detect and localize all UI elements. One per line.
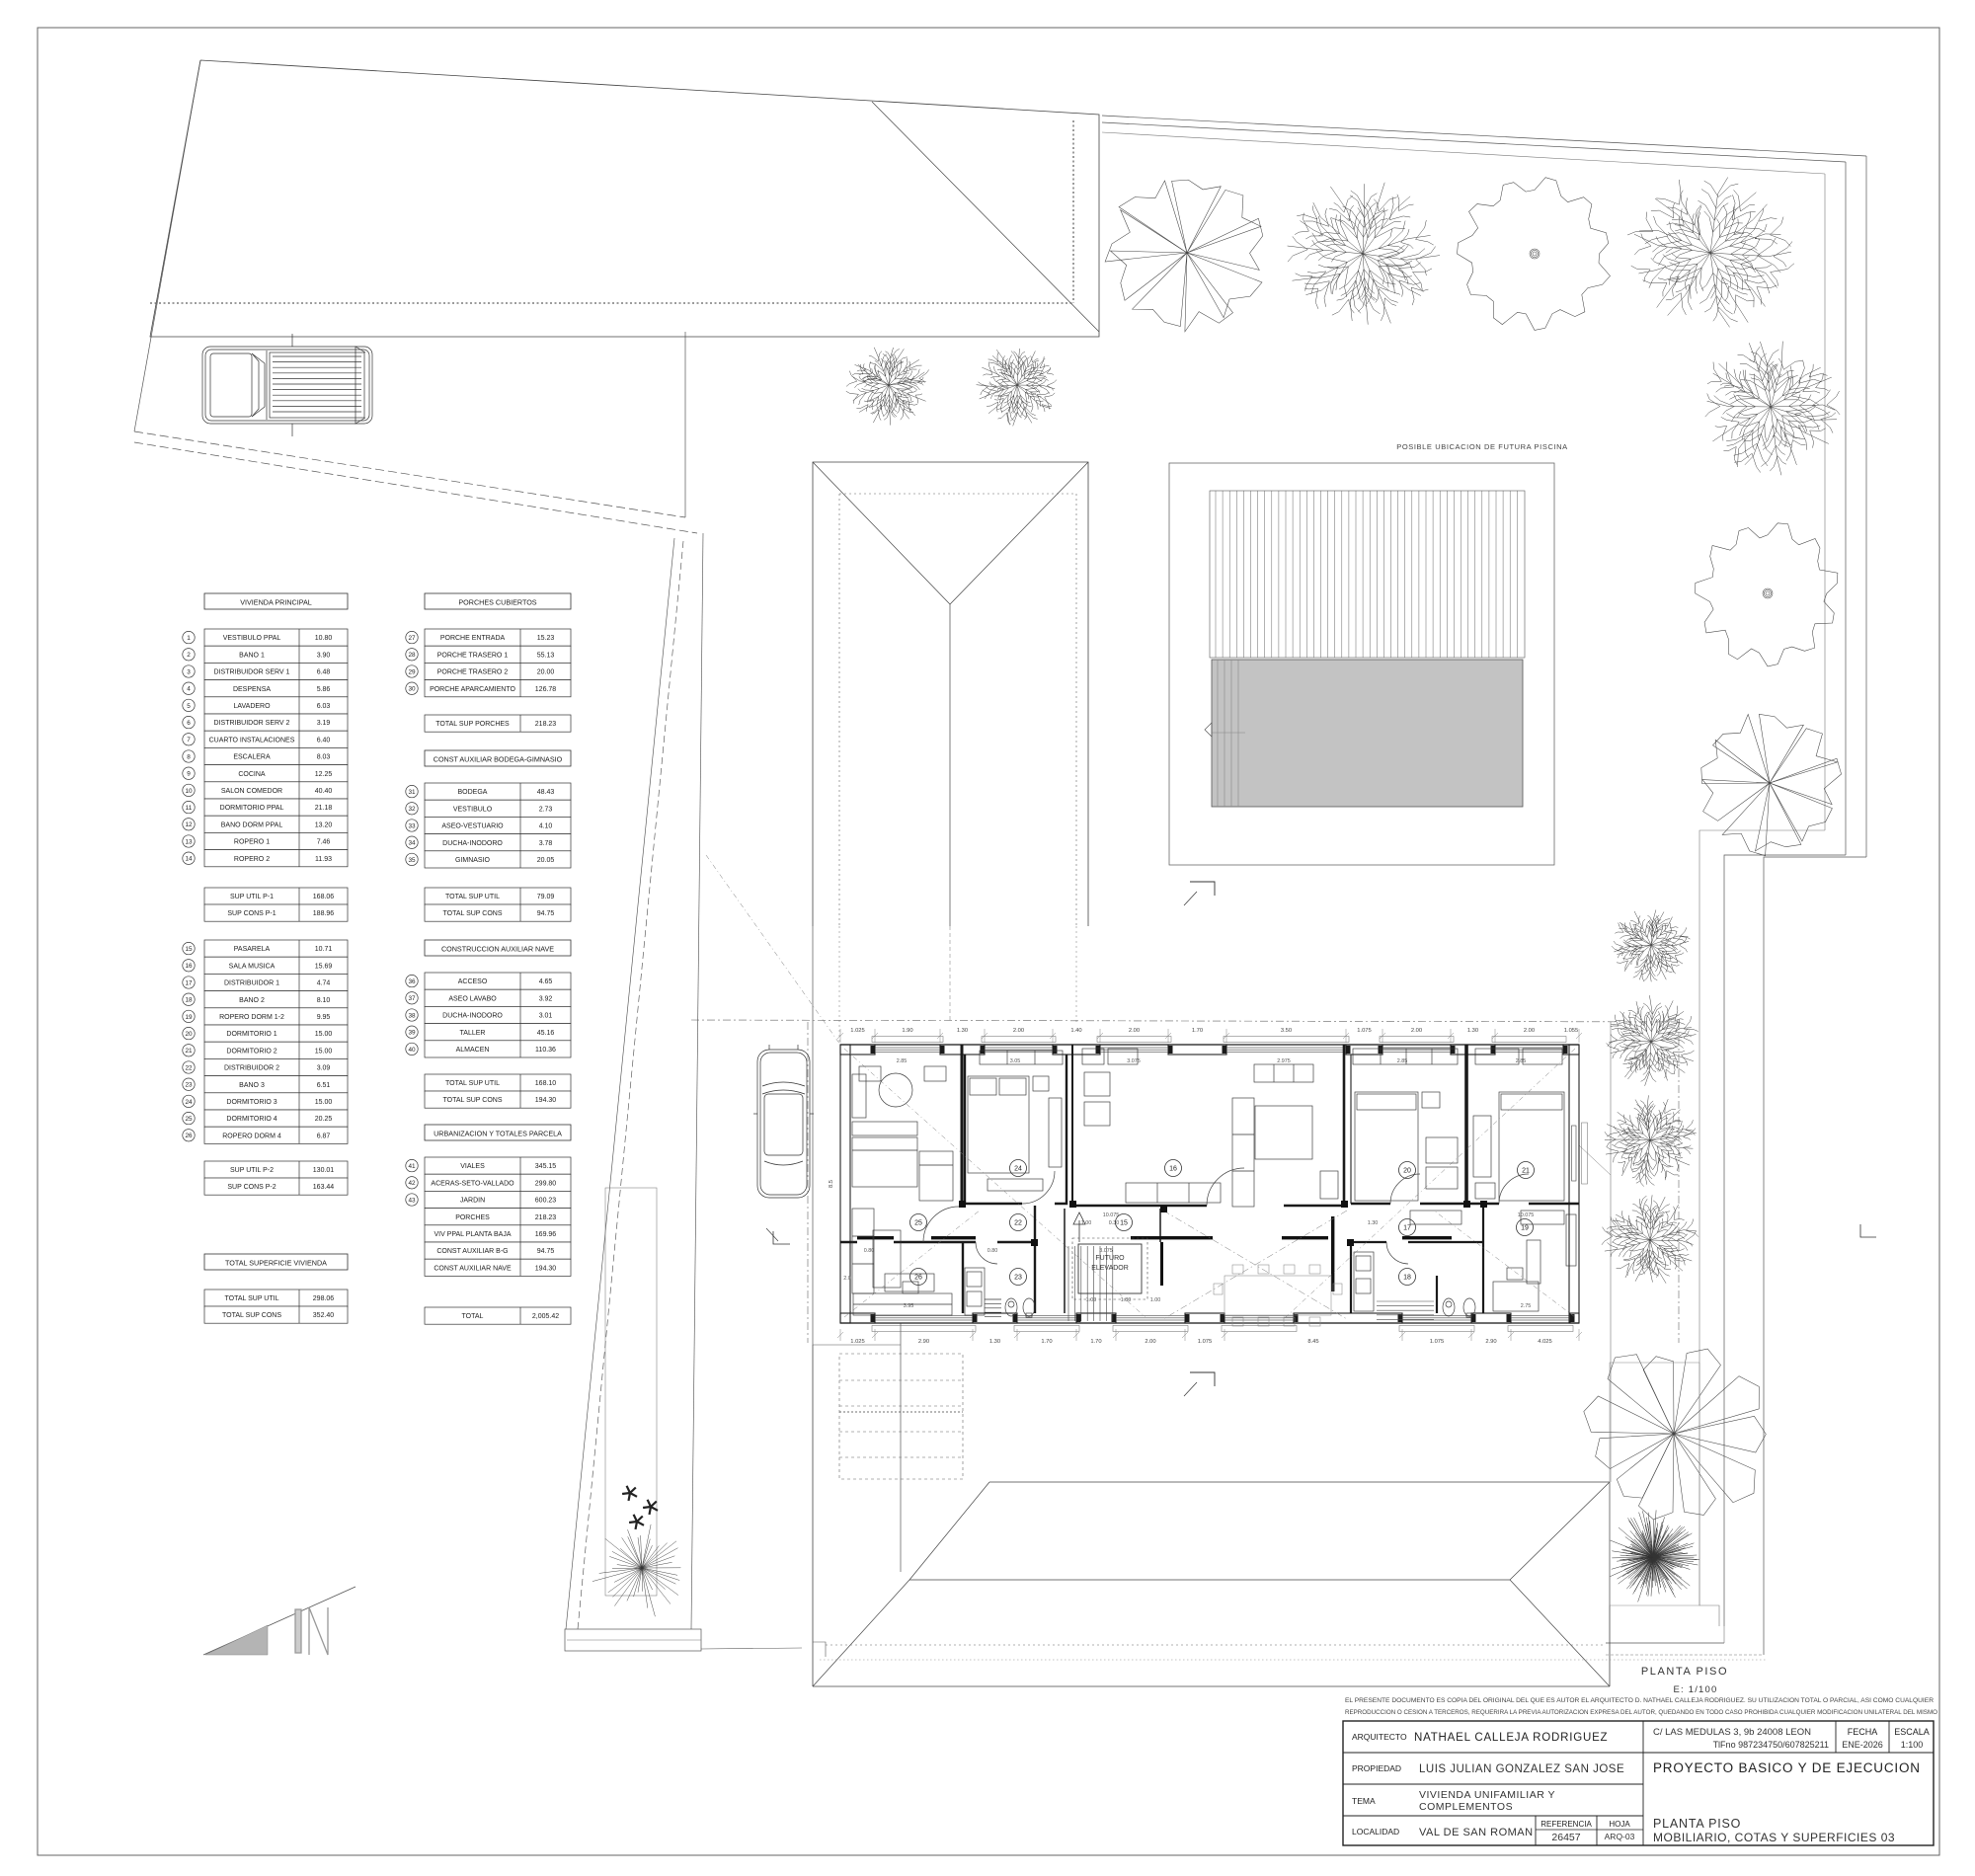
svg-text:2.0: 2.0 xyxy=(843,1276,851,1282)
svg-text:3.50: 3.50 xyxy=(1281,1028,1292,1034)
svg-text:2.00: 2.00 xyxy=(1013,1028,1024,1034)
svg-text:ACCESO: ACCESO xyxy=(458,978,488,985)
svg-text:PORCHE ENTRADA: PORCHE ENTRADA xyxy=(440,635,506,642)
svg-text:8.5: 8.5 xyxy=(829,1180,834,1188)
svg-text:9: 9 xyxy=(187,771,191,778)
svg-text:ESCALERA: ESCALERA xyxy=(233,754,271,761)
svg-text:DORMITORIO 2: DORMITORIO 2 xyxy=(226,1048,276,1055)
svg-text:28: 28 xyxy=(408,652,416,659)
svg-text:33: 33 xyxy=(408,822,416,829)
svg-text:DORMITORIO 1: DORMITORIO 1 xyxy=(226,1031,276,1038)
svg-text:17: 17 xyxy=(1403,1225,1411,1232)
svg-text:4.65: 4.65 xyxy=(539,978,553,985)
svg-text:38: 38 xyxy=(408,1012,416,1019)
svg-text:19: 19 xyxy=(1521,1225,1529,1232)
svg-text:15.00: 15.00 xyxy=(315,1031,333,1038)
svg-text:1.70: 1.70 xyxy=(1041,1339,1052,1345)
svg-text:SUP CONS P-2: SUP CONS P-2 xyxy=(227,1184,276,1191)
svg-text:2.975: 2.975 xyxy=(1277,1058,1291,1064)
svg-text:43: 43 xyxy=(408,1197,416,1204)
svg-text:CONST AUXILIAR NAVE: CONST AUXILIAR NAVE xyxy=(434,1265,512,1272)
svg-text:1:100: 1:100 xyxy=(1901,1740,1924,1750)
svg-text:4: 4 xyxy=(187,686,191,693)
svg-text:1.40: 1.40 xyxy=(1070,1028,1081,1034)
svg-text:2.85: 2.85 xyxy=(897,1058,908,1064)
svg-text:5.86: 5.86 xyxy=(317,686,331,693)
svg-text:BANO DORM PPAL: BANO DORM PPAL xyxy=(221,821,283,828)
svg-text:ENE-2026: ENE-2026 xyxy=(1842,1740,1883,1750)
svg-text:GIMNASIO: GIMNASIO xyxy=(455,857,491,864)
svg-text:30: 30 xyxy=(408,686,416,693)
svg-text:8.45: 8.45 xyxy=(1307,1339,1318,1345)
svg-text:14: 14 xyxy=(185,856,193,863)
svg-text:23: 23 xyxy=(1014,1275,1022,1282)
svg-text:2.00: 2.00 xyxy=(1524,1028,1535,1034)
svg-text:2: 2 xyxy=(187,652,191,659)
svg-text:ROPERO DORM 1-2: ROPERO DORM 1-2 xyxy=(219,1014,284,1021)
svg-text:2.85: 2.85 xyxy=(1397,1058,1408,1064)
svg-text:94.75: 94.75 xyxy=(537,910,555,917)
svg-text:0.80: 0.80 xyxy=(987,1248,998,1254)
svg-text:42: 42 xyxy=(408,1180,416,1187)
svg-text:3: 3 xyxy=(187,668,191,675)
svg-text:45.16: 45.16 xyxy=(537,1030,555,1037)
svg-text:218.23: 218.23 xyxy=(535,1214,557,1221)
svg-text:9.95: 9.95 xyxy=(317,1014,331,1021)
svg-text:VAL DE SAN ROMAN: VAL DE SAN ROMAN xyxy=(1419,1827,1534,1838)
svg-text:ROPERO 2: ROPERO 2 xyxy=(234,856,270,863)
svg-text:VESTIBULO: VESTIBULO xyxy=(453,806,493,813)
svg-text:12.25: 12.25 xyxy=(315,771,333,778)
svg-text:DORMITORIO 4: DORMITORIO 4 xyxy=(226,1116,276,1123)
svg-text:27: 27 xyxy=(408,635,416,642)
svg-text:TOTAL SUP CONS: TOTAL SUP CONS xyxy=(442,910,502,917)
svg-text:PASARELA: PASARELA xyxy=(234,946,271,953)
svg-text:PROYECTO BASICO Y DE EJECUCION: PROYECTO BASICO Y DE EJECUCION xyxy=(1653,1760,1921,1775)
svg-text:6.51: 6.51 xyxy=(317,1082,331,1089)
svg-text:COCINA: COCINA xyxy=(238,771,266,778)
svg-text:3.95: 3.95 xyxy=(904,1303,914,1309)
svg-text:MOBILIARIO, COTAS Y SUPERFICIE: MOBILIARIO, COTAS Y SUPERFICIES 03 xyxy=(1653,1831,1895,1844)
svg-text:5: 5 xyxy=(187,703,191,710)
svg-text:PORCHE APARCAMIENTO: PORCHE APARCAMIENTO xyxy=(430,686,515,693)
svg-text:LAVADERO: LAVADERO xyxy=(233,703,271,710)
svg-text:1.00: 1.00 xyxy=(1150,1297,1161,1303)
svg-text:12: 12 xyxy=(185,821,193,828)
svg-text:VIVIENDA UNIFAMILIAR Y: VIVIENDA UNIFAMILIAR Y xyxy=(1419,1789,1555,1801)
svg-text:37: 37 xyxy=(408,995,416,1002)
svg-text:PLANTA PISO: PLANTA PISO xyxy=(1641,1666,1728,1678)
svg-text:94.75: 94.75 xyxy=(537,1248,555,1255)
svg-text:31: 31 xyxy=(408,789,416,796)
svg-text:ESCALA: ESCALA xyxy=(1894,1727,1930,1737)
svg-text:TOTAL SUP CONS: TOTAL SUP CONS xyxy=(442,1097,502,1104)
svg-text:3.92: 3.92 xyxy=(539,995,553,1002)
svg-text:10: 10 xyxy=(185,788,193,795)
svg-text:SUP CONS P-1: SUP CONS P-1 xyxy=(227,910,276,917)
svg-text:39: 39 xyxy=(408,1030,416,1037)
svg-text:TALLER: TALLER xyxy=(460,1030,486,1037)
svg-text:20: 20 xyxy=(1403,1168,1411,1175)
svg-text:15.23: 15.23 xyxy=(537,635,555,642)
svg-text:TOTAL SUPERFICIE VIVIENDA: TOTAL SUPERFICIE VIVIENDA xyxy=(225,1259,327,1268)
svg-text:16: 16 xyxy=(185,963,193,970)
svg-text:11.93: 11.93 xyxy=(315,856,332,863)
svg-text:ARQUITECTO: ARQUITECTO xyxy=(1352,1732,1407,1742)
svg-text:168.06: 168.06 xyxy=(313,894,335,900)
svg-text:20.00: 20.00 xyxy=(537,669,555,676)
svg-text:DUCHA-INODORO: DUCHA-INODORO xyxy=(442,840,503,847)
svg-text:16: 16 xyxy=(1169,1166,1177,1173)
svg-text:DORMITORIO PPAL: DORMITORIO PPAL xyxy=(220,805,284,812)
svg-text:24: 24 xyxy=(185,1099,193,1106)
svg-text:48.43: 48.43 xyxy=(537,789,555,796)
svg-text:2.75: 2.75 xyxy=(1521,1303,1532,1309)
svg-text:26: 26 xyxy=(914,1275,922,1282)
svg-text:15: 15 xyxy=(1120,1220,1128,1227)
svg-text:BODEGA: BODEGA xyxy=(458,789,488,796)
svg-text:29: 29 xyxy=(408,668,416,675)
svg-text:6.40: 6.40 xyxy=(317,737,331,743)
svg-text:194.30: 194.30 xyxy=(535,1097,557,1104)
svg-text:3.01: 3.01 xyxy=(539,1013,553,1020)
svg-text:0.80: 0.80 xyxy=(864,1248,875,1254)
svg-text:PORCHES: PORCHES xyxy=(455,1214,490,1221)
svg-text:1.075: 1.075 xyxy=(1357,1028,1372,1034)
svg-text:7: 7 xyxy=(187,737,191,743)
svg-text:3.075: 3.075 xyxy=(1127,1058,1141,1064)
svg-text:CUARTO INSTALACIONES: CUARTO INSTALACIONES xyxy=(209,737,295,743)
svg-text:ROPERO 1: ROPERO 1 xyxy=(234,839,270,846)
svg-text:1.30: 1.30 xyxy=(1368,1220,1379,1226)
svg-text:2.73: 2.73 xyxy=(539,806,553,813)
svg-text:2.90: 2.90 xyxy=(1485,1339,1496,1345)
svg-text:13.20: 13.20 xyxy=(315,821,333,828)
svg-text:1.075: 1.075 xyxy=(1198,1339,1213,1345)
svg-text:20.25: 20.25 xyxy=(315,1116,333,1123)
svg-text:21: 21 xyxy=(1522,1168,1530,1175)
svg-text:DISTRIBUIDOR SERV 1: DISTRIBUIDOR SERV 1 xyxy=(214,669,290,676)
svg-text:13: 13 xyxy=(185,838,193,845)
svg-text:3.09: 3.09 xyxy=(317,1065,331,1072)
svg-text:NATHAEL CALLEJA RODRIGUEZ: NATHAEL CALLEJA RODRIGUEZ xyxy=(1414,1732,1608,1744)
svg-text:C/ LAS MEDULAS 3, 9b 24008 LEO: C/ LAS MEDULAS 3, 9b 24008 LEON xyxy=(1653,1727,1811,1738)
svg-text:VIV PPAL PLANTA BAJA: VIV PPAL PLANTA BAJA xyxy=(434,1231,511,1238)
svg-text:22: 22 xyxy=(1014,1220,1022,1227)
svg-text:4.025: 4.025 xyxy=(1538,1339,1552,1345)
svg-text:BANO 2: BANO 2 xyxy=(239,997,265,1004)
svg-text:PORCHE TRASERO 2: PORCHE TRASERO 2 xyxy=(437,669,509,676)
svg-text:10.71: 10.71 xyxy=(315,946,333,953)
svg-text:TlFno 987234750/607825211: TlFno 987234750/607825211 xyxy=(1713,1740,1829,1750)
svg-text:LUIS JULIAN GONZALEZ SAN JOSE: LUIS JULIAN GONZALEZ SAN JOSE xyxy=(1419,1763,1624,1775)
svg-text:DUCHA-INODORO: DUCHA-INODORO xyxy=(442,1013,503,1020)
svg-text:CONST AUXILIAR B-G: CONST AUXILIAR B-G xyxy=(436,1248,508,1255)
svg-text:LOCALIDAD: LOCALIDAD xyxy=(1352,1827,1399,1837)
svg-text:2.00: 2.00 xyxy=(1145,1339,1155,1345)
svg-text:25: 25 xyxy=(185,1116,193,1123)
svg-text:126.78: 126.78 xyxy=(535,686,557,693)
svg-text:8.03: 8.03 xyxy=(317,754,331,761)
svg-text:3.075: 3.075 xyxy=(1099,1248,1113,1254)
svg-text:352.40: 352.40 xyxy=(313,1312,335,1319)
svg-text:TOTAL SUP CONS: TOTAL SUP CONS xyxy=(222,1312,281,1319)
svg-text:ASEO LAVABO: ASEO LAVABO xyxy=(448,995,497,1002)
svg-text:DESPENSA: DESPENSA xyxy=(233,686,271,693)
svg-text:15.00: 15.00 xyxy=(315,1048,333,1055)
svg-text:1.025: 1.025 xyxy=(850,1028,865,1034)
svg-text:26: 26 xyxy=(185,1133,193,1139)
svg-text:1.075: 1.075 xyxy=(1430,1339,1445,1345)
svg-text:SUP UTIL P-2: SUP UTIL P-2 xyxy=(230,1167,274,1174)
svg-text:VESTIBULO PPAL: VESTIBULO PPAL xyxy=(223,635,281,642)
svg-text:TOTAL SUP UTIL: TOTAL SUP UTIL xyxy=(445,894,500,900)
svg-text:218.23: 218.23 xyxy=(535,721,557,728)
svg-text:298.06: 298.06 xyxy=(313,1295,335,1302)
svg-text:34: 34 xyxy=(408,840,416,847)
svg-text:163.44: 163.44 xyxy=(313,1184,335,1191)
svg-text:TOTAL SUP PORCHES: TOTAL SUP PORCHES xyxy=(435,721,510,728)
svg-text:4.10: 4.10 xyxy=(539,823,553,830)
svg-text:40: 40 xyxy=(408,1047,416,1054)
svg-text:COMPLEMENTOS: COMPLEMENTOS xyxy=(1419,1801,1513,1813)
svg-text:ASEO-VESTUARIO: ASEO-VESTUARIO xyxy=(441,823,504,830)
svg-text:55.13: 55.13 xyxy=(537,652,555,659)
svg-text:40.40: 40.40 xyxy=(315,788,333,795)
svg-text:1.00: 1.00 xyxy=(1086,1297,1097,1303)
svg-text:EL PRESENTE DOCUMENTO ES COPIA: EL PRESENTE DOCUMENTO ES COPIA DEL ORIGI… xyxy=(1345,1697,1934,1704)
svg-text:DORMITORIO 3: DORMITORIO 3 xyxy=(226,1099,276,1106)
svg-text:TEMA: TEMA xyxy=(1352,1796,1376,1806)
svg-text:CONSTRUCCION AUXILIAR NAVE: CONSTRUCCION AUXILIAR NAVE xyxy=(441,945,554,954)
svg-text:1.70: 1.70 xyxy=(1192,1028,1203,1034)
svg-text:4.74: 4.74 xyxy=(317,980,331,987)
svg-text:41: 41 xyxy=(408,1163,416,1170)
svg-text:11: 11 xyxy=(186,805,193,812)
svg-text:10.075: 10.075 xyxy=(1518,1212,1535,1218)
svg-text:21.18: 21.18 xyxy=(315,805,333,812)
svg-text:SUP UTIL P-1: SUP UTIL P-1 xyxy=(230,894,274,900)
svg-text:1.90: 1.90 xyxy=(902,1028,912,1034)
svg-text:10.80: 10.80 xyxy=(315,635,333,642)
svg-text:TOTAL: TOTAL xyxy=(462,1313,484,1320)
svg-text:169.96: 169.96 xyxy=(535,1231,557,1238)
svg-text:15: 15 xyxy=(185,946,193,953)
svg-text:345.15: 345.15 xyxy=(535,1163,557,1170)
svg-text:110.36: 110.36 xyxy=(535,1047,556,1054)
svg-text:PROPIEDAD: PROPIEDAD xyxy=(1352,1763,1401,1773)
svg-text:299.80: 299.80 xyxy=(535,1180,557,1187)
svg-text:1.025: 1.025 xyxy=(850,1339,865,1345)
svg-text:HOJA: HOJA xyxy=(1609,1820,1630,1829)
svg-text:79.09: 79.09 xyxy=(537,894,555,900)
svg-text:SALA MUSICA: SALA MUSICA xyxy=(229,963,276,970)
svg-text:3.19: 3.19 xyxy=(317,720,331,727)
svg-text:1.30: 1.30 xyxy=(989,1339,1000,1345)
svg-text:SALON COMEDOR: SALON COMEDOR xyxy=(221,788,282,795)
svg-text:3.90: 3.90 xyxy=(317,652,331,659)
svg-text:E: 1/100: E: 1/100 xyxy=(1674,1684,1718,1695)
svg-text:FECHA: FECHA xyxy=(1848,1727,1878,1737)
svg-text:ACERAS-SETO-VALLADO: ACERAS-SETO-VALLADO xyxy=(431,1180,514,1187)
svg-text:DISTRIBUIDOR 1: DISTRIBUIDOR 1 xyxy=(224,980,279,987)
svg-text:600.23: 600.23 xyxy=(535,1198,557,1205)
svg-text:REFERENCIA: REFERENCIA xyxy=(1540,1820,1592,1829)
svg-text:ALMACEN: ALMACEN xyxy=(456,1047,490,1054)
svg-text:DISTRIBUIDOR SERV 2: DISTRIBUIDOR SERV 2 xyxy=(214,720,290,727)
svg-text:2.85: 2.85 xyxy=(1516,1058,1527,1064)
svg-text:BANO 3: BANO 3 xyxy=(239,1082,265,1089)
svg-text:8.10: 8.10 xyxy=(317,997,331,1004)
svg-text:26457: 26457 xyxy=(1551,1832,1580,1843)
svg-text:1.00: 1.00 xyxy=(1081,1220,1092,1226)
svg-text:6.03: 6.03 xyxy=(317,703,331,710)
svg-text:3.05: 3.05 xyxy=(1010,1058,1021,1064)
svg-text:18: 18 xyxy=(185,997,193,1004)
svg-text:6: 6 xyxy=(187,720,191,727)
svg-text:2.00: 2.00 xyxy=(1411,1028,1422,1034)
svg-text:25: 25 xyxy=(914,1220,922,1227)
svg-text:188.96: 188.96 xyxy=(313,910,335,917)
svg-text:ARQ-03: ARQ-03 xyxy=(1605,1832,1635,1841)
svg-text:PORCHE TRASERO 1: PORCHE TRASERO 1 xyxy=(437,652,509,659)
svg-text:2,005.42: 2,005.42 xyxy=(532,1313,559,1320)
svg-text:1: 1 xyxy=(187,635,191,642)
svg-text:0.30: 0.30 xyxy=(1109,1220,1120,1226)
svg-text:18: 18 xyxy=(1403,1275,1411,1282)
svg-text:130.01: 130.01 xyxy=(313,1167,335,1174)
svg-text:15.00: 15.00 xyxy=(315,1099,333,1106)
svg-text:15.69: 15.69 xyxy=(315,963,333,970)
svg-text:194.30: 194.30 xyxy=(535,1265,557,1272)
svg-text:7.46: 7.46 xyxy=(317,839,331,846)
svg-text:PLANTA PISO: PLANTA PISO xyxy=(1653,1817,1741,1831)
svg-text:168.10: 168.10 xyxy=(535,1080,557,1087)
svg-text:1.30: 1.30 xyxy=(957,1028,968,1034)
svg-text:1.70: 1.70 xyxy=(1090,1339,1101,1345)
svg-text:32: 32 xyxy=(408,806,416,813)
svg-text:CONST AUXILIAR BODEGA-GIMNASIO: CONST AUXILIAR BODEGA-GIMNASIO xyxy=(434,755,563,764)
svg-text:ELEVADOR: ELEVADOR xyxy=(1091,1265,1129,1272)
svg-text:21: 21 xyxy=(185,1048,193,1055)
svg-text:36: 36 xyxy=(408,978,416,985)
svg-text:VIALES: VIALES xyxy=(460,1163,485,1170)
svg-text:6.87: 6.87 xyxy=(317,1133,331,1139)
svg-text:TOTAL SUP UTIL: TOTAL SUP UTIL xyxy=(225,1295,279,1302)
svg-text:17: 17 xyxy=(185,979,193,986)
svg-text:PORCHES CUBIERTOS: PORCHES CUBIERTOS xyxy=(458,598,536,607)
svg-text:3.78: 3.78 xyxy=(539,840,553,847)
svg-text:2.00: 2.00 xyxy=(1129,1028,1140,1034)
svg-text:ROPERO DORM 4: ROPERO DORM 4 xyxy=(222,1133,281,1139)
svg-text:1.30: 1.30 xyxy=(1467,1028,1478,1034)
svg-text:BANO 1: BANO 1 xyxy=(239,652,265,659)
svg-text:6.48: 6.48 xyxy=(317,669,331,676)
svg-text:1.055: 1.055 xyxy=(1564,1028,1579,1034)
svg-text:8: 8 xyxy=(187,753,191,760)
svg-text:DISTRIBUIDOR 2: DISTRIBUIDOR 2 xyxy=(224,1065,279,1072)
svg-text:REPRODUCCION O CESION A TERCER: REPRODUCCION O CESION A TERCEROS, REQUER… xyxy=(1345,1709,1937,1716)
svg-text:20: 20 xyxy=(185,1031,193,1038)
svg-text:23: 23 xyxy=(185,1082,193,1089)
svg-text:24: 24 xyxy=(1014,1166,1022,1173)
svg-text:FUTURO: FUTURO xyxy=(1095,1255,1125,1262)
svg-text:35: 35 xyxy=(408,857,416,864)
svg-text:20.05: 20.05 xyxy=(537,857,555,864)
svg-text:JARDIN: JARDIN xyxy=(460,1198,485,1205)
svg-text:VIVIENDA PRINCIPAL: VIVIENDA PRINCIPAL xyxy=(240,598,312,607)
svg-text:1.80: 1.80 xyxy=(1121,1297,1132,1303)
svg-text:TOTAL SUP UTIL: TOTAL SUP UTIL xyxy=(445,1080,500,1087)
svg-text:2.90: 2.90 xyxy=(918,1339,929,1345)
svg-text:POSIBLE UBICACION DE FUTURA PI: POSIBLE UBICACION DE FUTURA PISCINA xyxy=(1396,442,1568,451)
svg-text:22: 22 xyxy=(185,1064,193,1071)
svg-text:19: 19 xyxy=(185,1014,193,1021)
svg-text:URBANIZACION Y TOTALES PARCELA: URBANIZACION Y TOTALES PARCELA xyxy=(434,1130,562,1138)
